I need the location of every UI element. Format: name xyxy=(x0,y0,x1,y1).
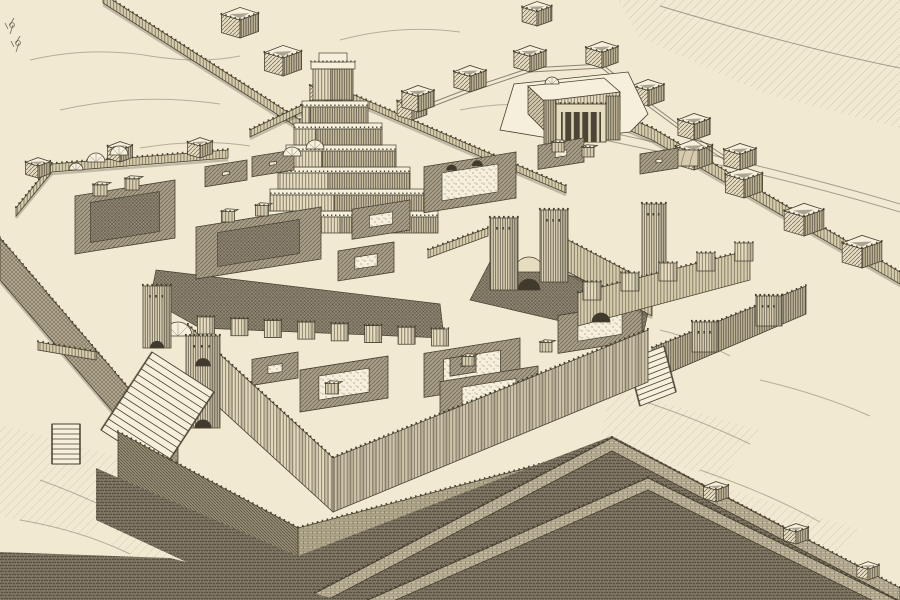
colonnade-pier xyxy=(431,327,449,346)
colonnade-pier xyxy=(620,271,639,291)
gate-tower xyxy=(142,284,172,348)
colonnade-pier xyxy=(297,320,315,339)
colonnade-pier xyxy=(364,324,382,343)
colonnade-pier xyxy=(230,317,248,336)
engraving-canvas xyxy=(0,0,900,600)
gate-tower-left xyxy=(489,216,519,290)
colonnade-pier xyxy=(330,322,348,341)
citadel-bastion xyxy=(755,294,783,326)
colonnade-pier xyxy=(658,261,677,281)
colonnade-pier xyxy=(734,241,753,261)
colonnade-pier xyxy=(582,280,601,300)
citadel-bastion xyxy=(691,320,719,352)
colonnade-pier xyxy=(264,319,282,338)
colonnade-pier xyxy=(696,251,715,271)
colonnade-pier xyxy=(197,315,215,334)
engraving-plate xyxy=(0,0,900,600)
colonnade-pier xyxy=(397,326,415,345)
terrace-stair xyxy=(52,424,80,464)
gate-tower-right xyxy=(539,208,569,282)
temple-portico xyxy=(555,102,607,142)
engraved-scene xyxy=(0,0,900,600)
